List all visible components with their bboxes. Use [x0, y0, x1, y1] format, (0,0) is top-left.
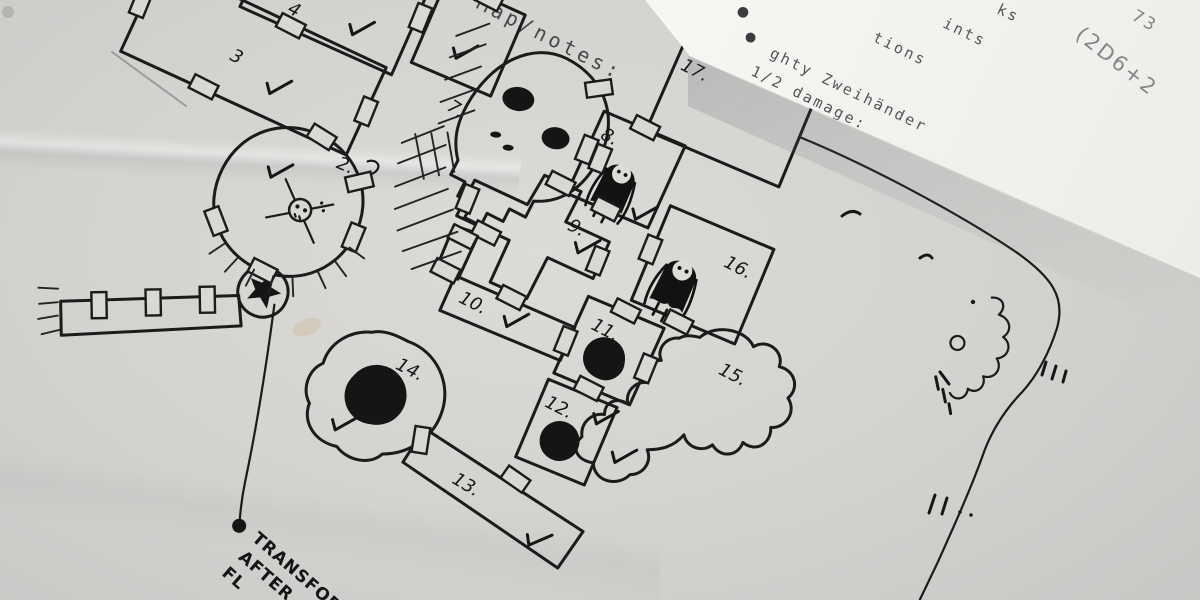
- checkmark: [346, 13, 374, 41]
- checkmark: [609, 441, 637, 469]
- typed-fragment-2: ints: [940, 14, 989, 50]
- room-label-12: 12.: [541, 392, 576, 424]
- room-label-10: 10.: [455, 287, 490, 319]
- photo-of-dungeon-map: Map/notes:: [0, 0, 1200, 600]
- door: [129, 0, 153, 18]
- door: [342, 222, 366, 252]
- door: [554, 326, 578, 356]
- door: [430, 258, 460, 283]
- door: [409, 3, 433, 33]
- map-notes-heading: Map/notes:: [473, 0, 627, 85]
- door: [586, 246, 610, 276]
- door: [634, 353, 658, 383]
- door: [574, 376, 604, 401]
- door: [546, 171, 576, 196]
- door: [639, 235, 663, 265]
- stray-ink-marks: [842, 211, 1066, 516]
- door: [412, 426, 431, 454]
- typed-fragment-1: ks: [994, 0, 1023, 26]
- stray-pencil-line: [112, 52, 186, 106]
- door: [307, 124, 337, 150]
- checkmark: [265, 155, 293, 183]
- door: [189, 74, 219, 99]
- bullet-icon: ●: [734, 2, 752, 22]
- skull-and-crossbones-icon: [266, 179, 334, 243]
- door: [354, 96, 378, 126]
- typed-fragment-3: tions: [870, 28, 930, 69]
- door: [501, 466, 531, 493]
- pencil-points-value: 73: [1128, 6, 1161, 37]
- door: [496, 285, 526, 310]
- door: [664, 309, 694, 334]
- room-10: [438, 269, 576, 370]
- checkmark: [263, 72, 291, 100]
- corner-smudge: [2, 6, 14, 18]
- door: [200, 287, 215, 313]
- transform-annotation: TRANSFOR AFTER FL: [140, 305, 451, 600]
- paper-stain: [290, 314, 324, 339]
- cave-scribble: [944, 296, 1027, 410]
- door: [630, 115, 660, 140]
- door: [585, 79, 613, 97]
- room-label-16: 16.: [721, 252, 756, 284]
- checkmark: [450, 36, 478, 64]
- door: [456, 184, 480, 214]
- bullet-icon: ●: [742, 28, 759, 46]
- room-2: [189, 102, 388, 301]
- room-label-3: 3: [227, 45, 247, 69]
- door: [204, 206, 227, 236]
- annotation-dot: [230, 516, 249, 535]
- room-16: [624, 199, 781, 351]
- door: [91, 292, 106, 318]
- room-label-15: 15.: [715, 359, 750, 391]
- door: [145, 289, 160, 315]
- pit-room-12: [533, 414, 587, 468]
- hatching: [20, 0, 559, 487]
